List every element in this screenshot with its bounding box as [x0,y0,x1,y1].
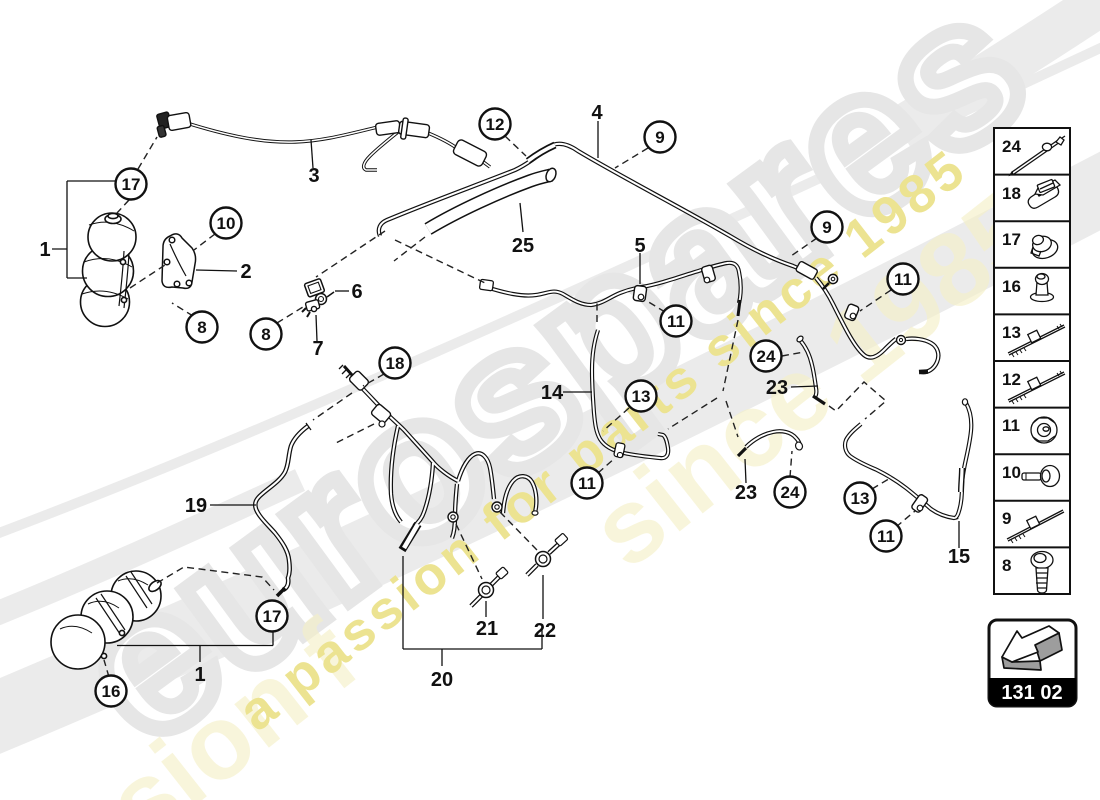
svg-text:12: 12 [486,115,505,134]
svg-text:131 02: 131 02 [1001,682,1062,704]
svg-text:16: 16 [102,682,121,701]
svg-text:10: 10 [217,214,236,233]
svg-text:8: 8 [197,318,206,337]
svg-text:4: 4 [591,102,603,124]
svg-text:8: 8 [1002,556,1011,575]
svg-text:10: 10 [1002,463,1021,482]
svg-text:7: 7 [312,338,323,360]
svg-text:9: 9 [1002,509,1011,528]
svg-text:8: 8 [261,325,270,344]
svg-text:1: 1 [39,239,50,261]
svg-text:17: 17 [1002,230,1021,249]
svg-text:13: 13 [851,489,870,508]
svg-text:6: 6 [351,281,362,303]
svg-text:24: 24 [781,483,800,502]
svg-text:11: 11 [894,270,912,289]
svg-text:24: 24 [1002,137,1021,156]
svg-text:9: 9 [822,218,831,237]
svg-text:22: 22 [534,620,556,642]
svg-text:17: 17 [122,175,141,194]
svg-text:3: 3 [308,165,319,187]
svg-text:17: 17 [263,607,282,626]
svg-text:21: 21 [476,618,498,640]
svg-text:24: 24 [757,347,776,366]
svg-text:23: 23 [735,482,757,504]
svg-text:11: 11 [877,527,895,546]
svg-text:18: 18 [386,354,405,373]
svg-text:14: 14 [541,382,564,404]
svg-text:13: 13 [1002,323,1021,342]
svg-text:15: 15 [948,546,970,568]
svg-text:25: 25 [512,235,534,257]
svg-text:18: 18 [1002,184,1021,203]
svg-text:11: 11 [1002,416,1020,435]
svg-text:5: 5 [634,235,645,257]
svg-text:16: 16 [1002,277,1021,296]
svg-text:9: 9 [655,128,664,147]
svg-text:20: 20 [431,669,453,691]
svg-text:11: 11 [667,312,685,331]
svg-text:23: 23 [766,377,788,399]
svg-text:13: 13 [632,387,651,406]
svg-text:19: 19 [185,495,207,517]
svg-text:1: 1 [194,664,205,686]
svg-text:12: 12 [1002,370,1021,389]
svg-text:11: 11 [578,474,596,493]
svg-text:2: 2 [240,261,251,283]
